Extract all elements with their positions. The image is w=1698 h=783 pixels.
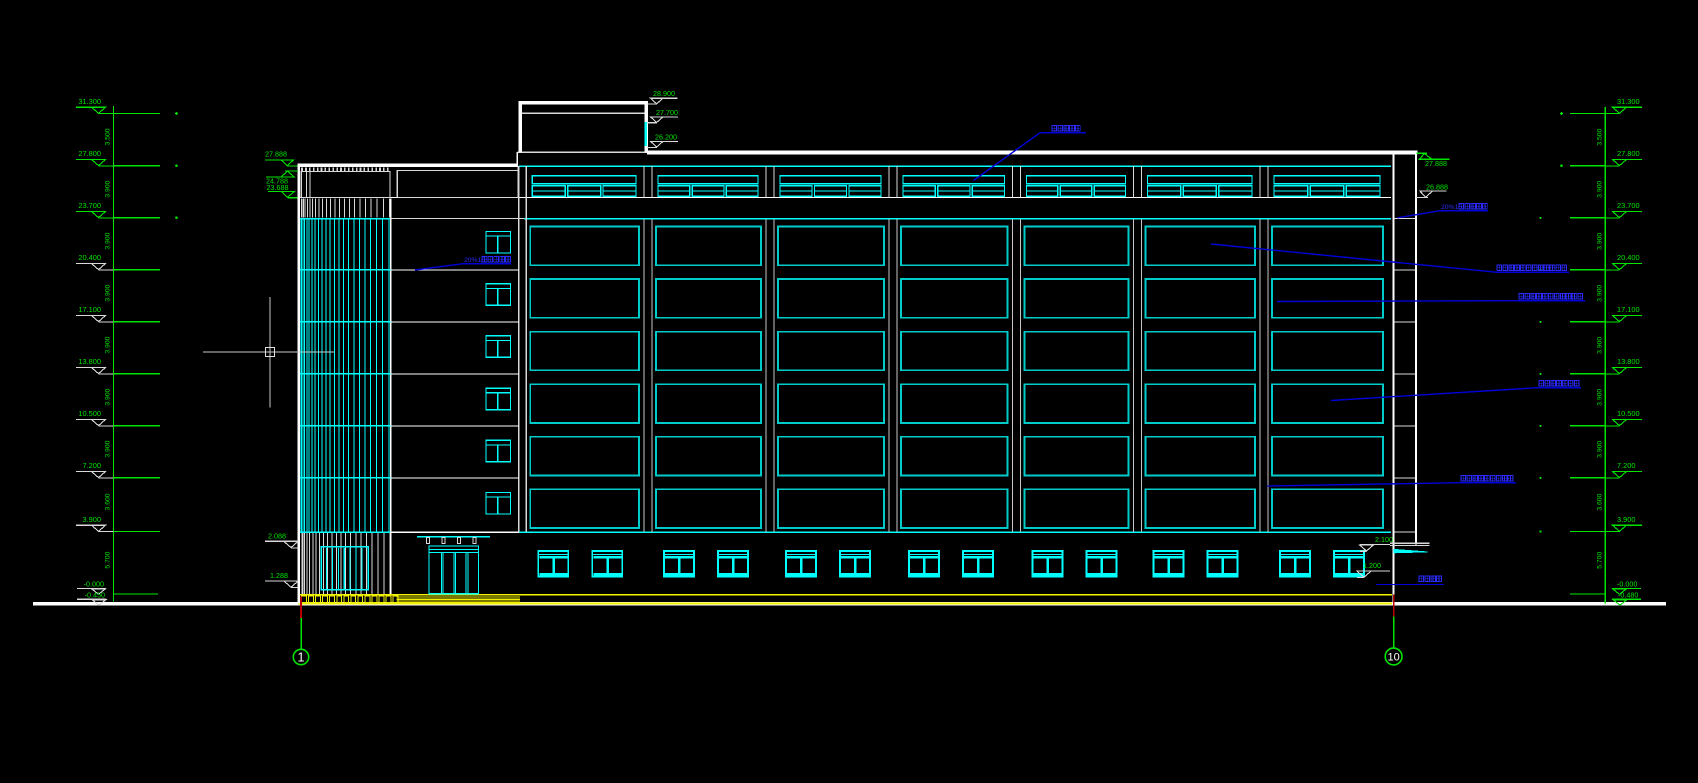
svg-text:3.900: 3.900 <box>105 388 112 405</box>
svg-text:17.100: 17.100 <box>1617 305 1640 314</box>
svg-text:13.800: 13.800 <box>1617 357 1640 366</box>
svg-text:3.900: 3.900 <box>105 284 112 301</box>
svg-text:27.800: 27.800 <box>1617 149 1640 158</box>
svg-text:3.900: 3.900 <box>1617 515 1636 524</box>
svg-text:23.700: 23.700 <box>78 201 101 210</box>
svg-text:31.300: 31.300 <box>1617 97 1640 106</box>
svg-text:3.900: 3.900 <box>1597 233 1604 250</box>
svg-text:5.700: 5.700 <box>105 551 112 568</box>
svg-text:17.100: 17.100 <box>78 305 101 314</box>
svg-text:7.200: 7.200 <box>83 461 102 470</box>
svg-text:2.100: 2.100 <box>1375 535 1393 544</box>
svg-text:3.600: 3.600 <box>1597 493 1604 510</box>
svg-text:3.900: 3.900 <box>83 515 102 524</box>
svg-text:28.900: 28.900 <box>653 89 675 98</box>
svg-text:7.200: 7.200 <box>1617 461 1636 470</box>
svg-text:2.088: 2.088 <box>268 532 286 541</box>
svg-text:1.288: 1.288 <box>270 571 288 580</box>
svg-text:27.700: 27.700 <box>656 108 678 117</box>
svg-text:3.500: 3.500 <box>105 128 112 145</box>
svg-text:27.888: 27.888 <box>265 150 287 159</box>
svg-text:23.688: 23.688 <box>267 183 289 192</box>
svg-text:3.600: 3.600 <box>105 493 112 510</box>
svg-text:31.300: 31.300 <box>78 97 101 106</box>
svg-text:5.700: 5.700 <box>1597 552 1604 569</box>
svg-text:3.900: 3.900 <box>1597 181 1604 198</box>
svg-text:-0.450: -0.450 <box>85 591 105 600</box>
svg-text:27.888: 27.888 <box>1425 159 1447 168</box>
svg-text:3.900: 3.900 <box>1597 441 1604 458</box>
svg-text:3.900: 3.900 <box>1597 337 1604 354</box>
svg-text:3.900: 3.900 <box>105 232 112 249</box>
svg-text:10.500: 10.500 <box>1617 409 1640 418</box>
svg-text:3.900: 3.900 <box>1597 285 1604 302</box>
svg-text:1.200: 1.200 <box>1363 561 1381 570</box>
svg-text:3.900: 3.900 <box>105 440 112 457</box>
svg-text:-0.480: -0.480 <box>1618 591 1638 600</box>
svg-text:26.200: 26.200 <box>655 133 677 142</box>
svg-text:1: 1 <box>298 651 305 665</box>
svg-text:20.400: 20.400 <box>1617 253 1640 262</box>
svg-text:27.800: 27.800 <box>78 149 101 158</box>
svg-text:3.900: 3.900 <box>105 180 112 197</box>
svg-text:20.400: 20.400 <box>78 253 101 262</box>
svg-text:10.500: 10.500 <box>78 409 101 418</box>
svg-text:13.800: 13.800 <box>78 357 101 366</box>
svg-text:-0.000: -0.000 <box>84 579 104 588</box>
svg-text:-0.000: -0.000 <box>1617 579 1637 588</box>
svg-text:10: 10 <box>1387 652 1399 664</box>
svg-text:23.700: 23.700 <box>1617 201 1640 210</box>
svg-text:3.900: 3.900 <box>105 336 112 353</box>
svg-text:26.888: 26.888 <box>1426 182 1448 191</box>
svg-text:3.900: 3.900 <box>1597 389 1604 406</box>
svg-text:3.500: 3.500 <box>1597 128 1604 145</box>
